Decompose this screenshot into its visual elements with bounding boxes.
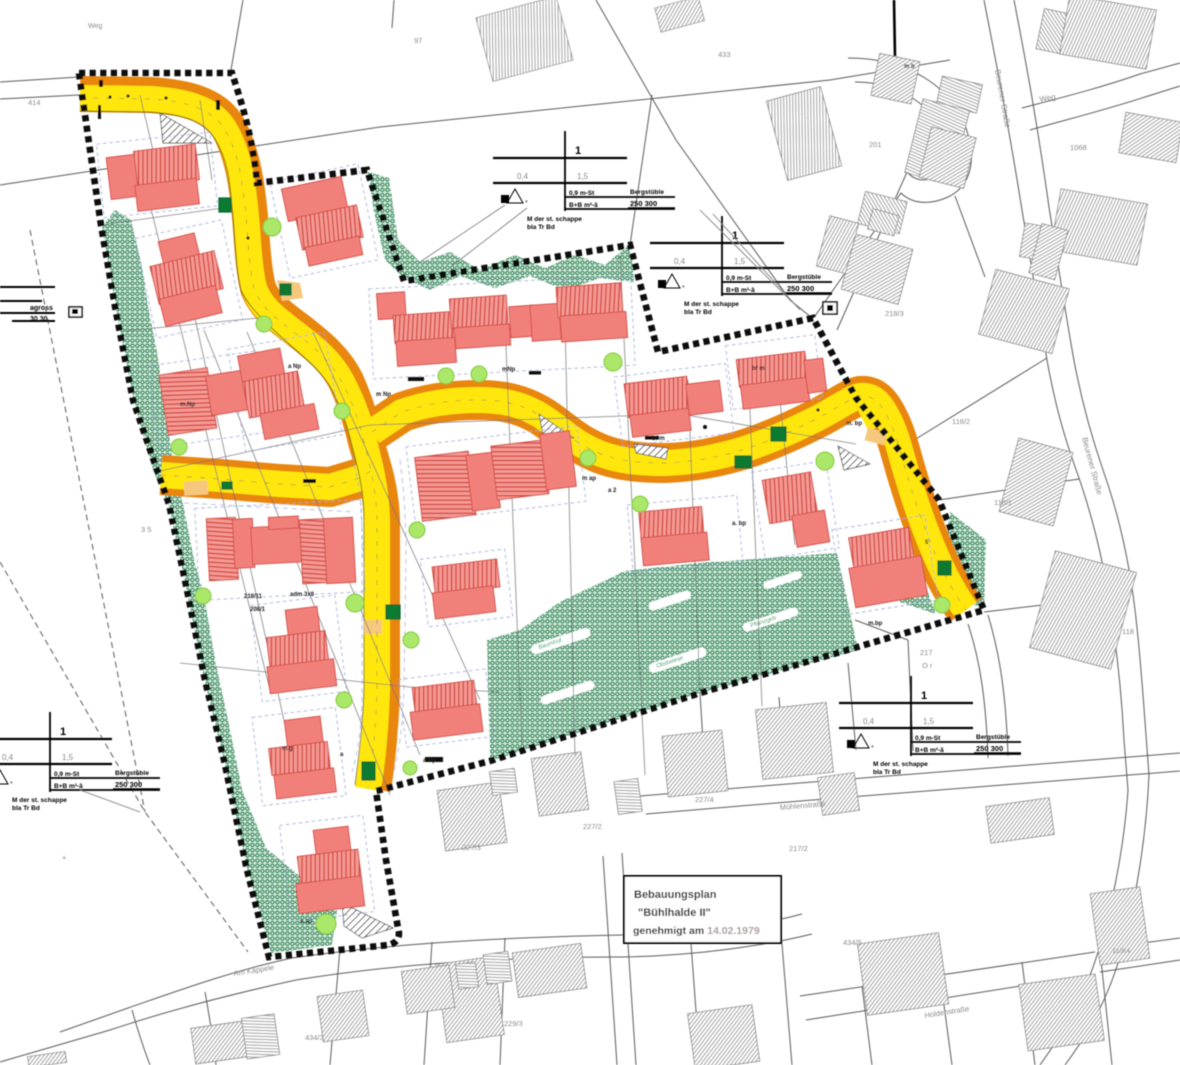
svg-text:218/11: 218/11 [244,594,263,600]
svg-text:adm 3x8: adm 3x8 [290,592,315,598]
svg-text:217: 217 [920,648,933,657]
svg-text:a Np: a Np [288,364,301,370]
svg-text:208/1: 208/1 [250,607,266,613]
svg-text:a.ap: a.ap [300,919,312,925]
svg-text:Weg: Weg [88,23,102,30]
svg-text:m.g: m.g [282,746,293,752]
svg-text:118: 118 [1122,627,1134,636]
svg-text:434/5: 434/5 [843,938,862,947]
svg-text:bf m: bf m [752,366,765,372]
svg-text:201: 201 [869,140,882,149]
svg-text:97: 97 [414,36,422,45]
svg-text:mNp: mNp [502,367,516,373]
svg-text:414: 414 [28,98,41,107]
svg-text:genehmigt am 14.02.1979: genehmigt am 14.02.1979 [633,925,760,937]
svg-text:229/3: 229/3 [504,1019,523,1028]
svg-text:3 5: 3 5 [141,525,151,534]
svg-text:a 2: a 2 [608,488,617,494]
svg-text:+: + [62,853,67,862]
svg-text:a. bp: a. bp [732,521,746,527]
svg-text:m.bp: m.bp [868,621,883,627]
svg-text:m b: m b [904,64,915,70]
svg-text:119/4: 119/4 [1112,946,1130,955]
svg-text:227/2: 227/2 [583,822,602,831]
svg-text:a.Np: a.Np [423,758,436,764]
svg-text:118/2: 118/2 [952,417,970,426]
svg-text:Bebauungsplan: Bebauungsplan [634,889,717,901]
svg-text:bf m: bf m [652,436,665,442]
svg-text:"Bühlhalde II": "Bühlhalde II" [638,907,711,919]
svg-text:m. bp: m. bp [846,421,862,427]
svg-text:227/4: 227/4 [695,795,714,804]
svg-text:118/1: 118/1 [994,498,1012,507]
svg-text:m.Np: m.Np [180,402,195,408]
svg-text:433: 433 [718,50,731,59]
svg-text:O r: O r [922,661,933,670]
svg-text:30 30.: 30 30. [30,316,50,323]
svg-text:217/2: 217/2 [789,844,808,853]
svg-text:m Np: m Np [376,392,391,398]
svg-text:218/3: 218/3 [885,309,904,318]
svg-text:227/3: 227/3 [462,843,481,852]
svg-text:1068: 1068 [1070,143,1087,152]
svg-text:m ap: m ap [582,476,596,482]
svg-text:434/3: 434/3 [305,1033,324,1042]
svg-text:agross: agross [30,305,53,312]
